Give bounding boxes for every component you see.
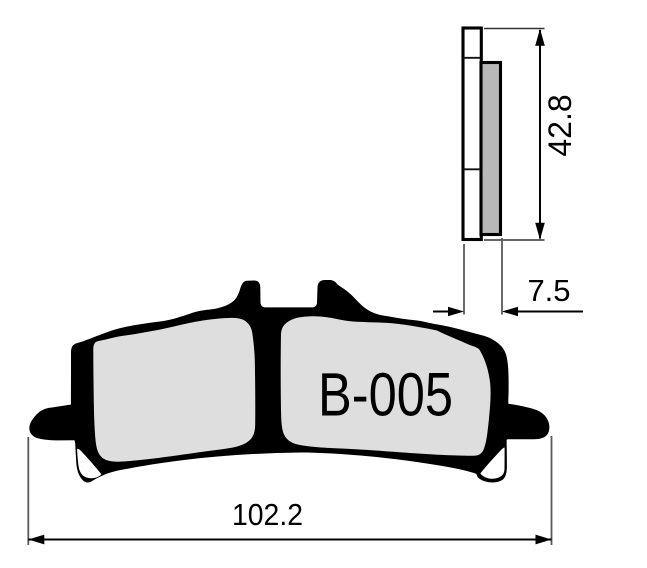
svg-text:102.2: 102.2 bbox=[232, 497, 303, 532]
svg-text:B-005: B-005 bbox=[318, 361, 453, 429]
svg-text:7.5: 7.5 bbox=[527, 273, 570, 308]
svg-text:42.8: 42.8 bbox=[542, 94, 578, 156]
